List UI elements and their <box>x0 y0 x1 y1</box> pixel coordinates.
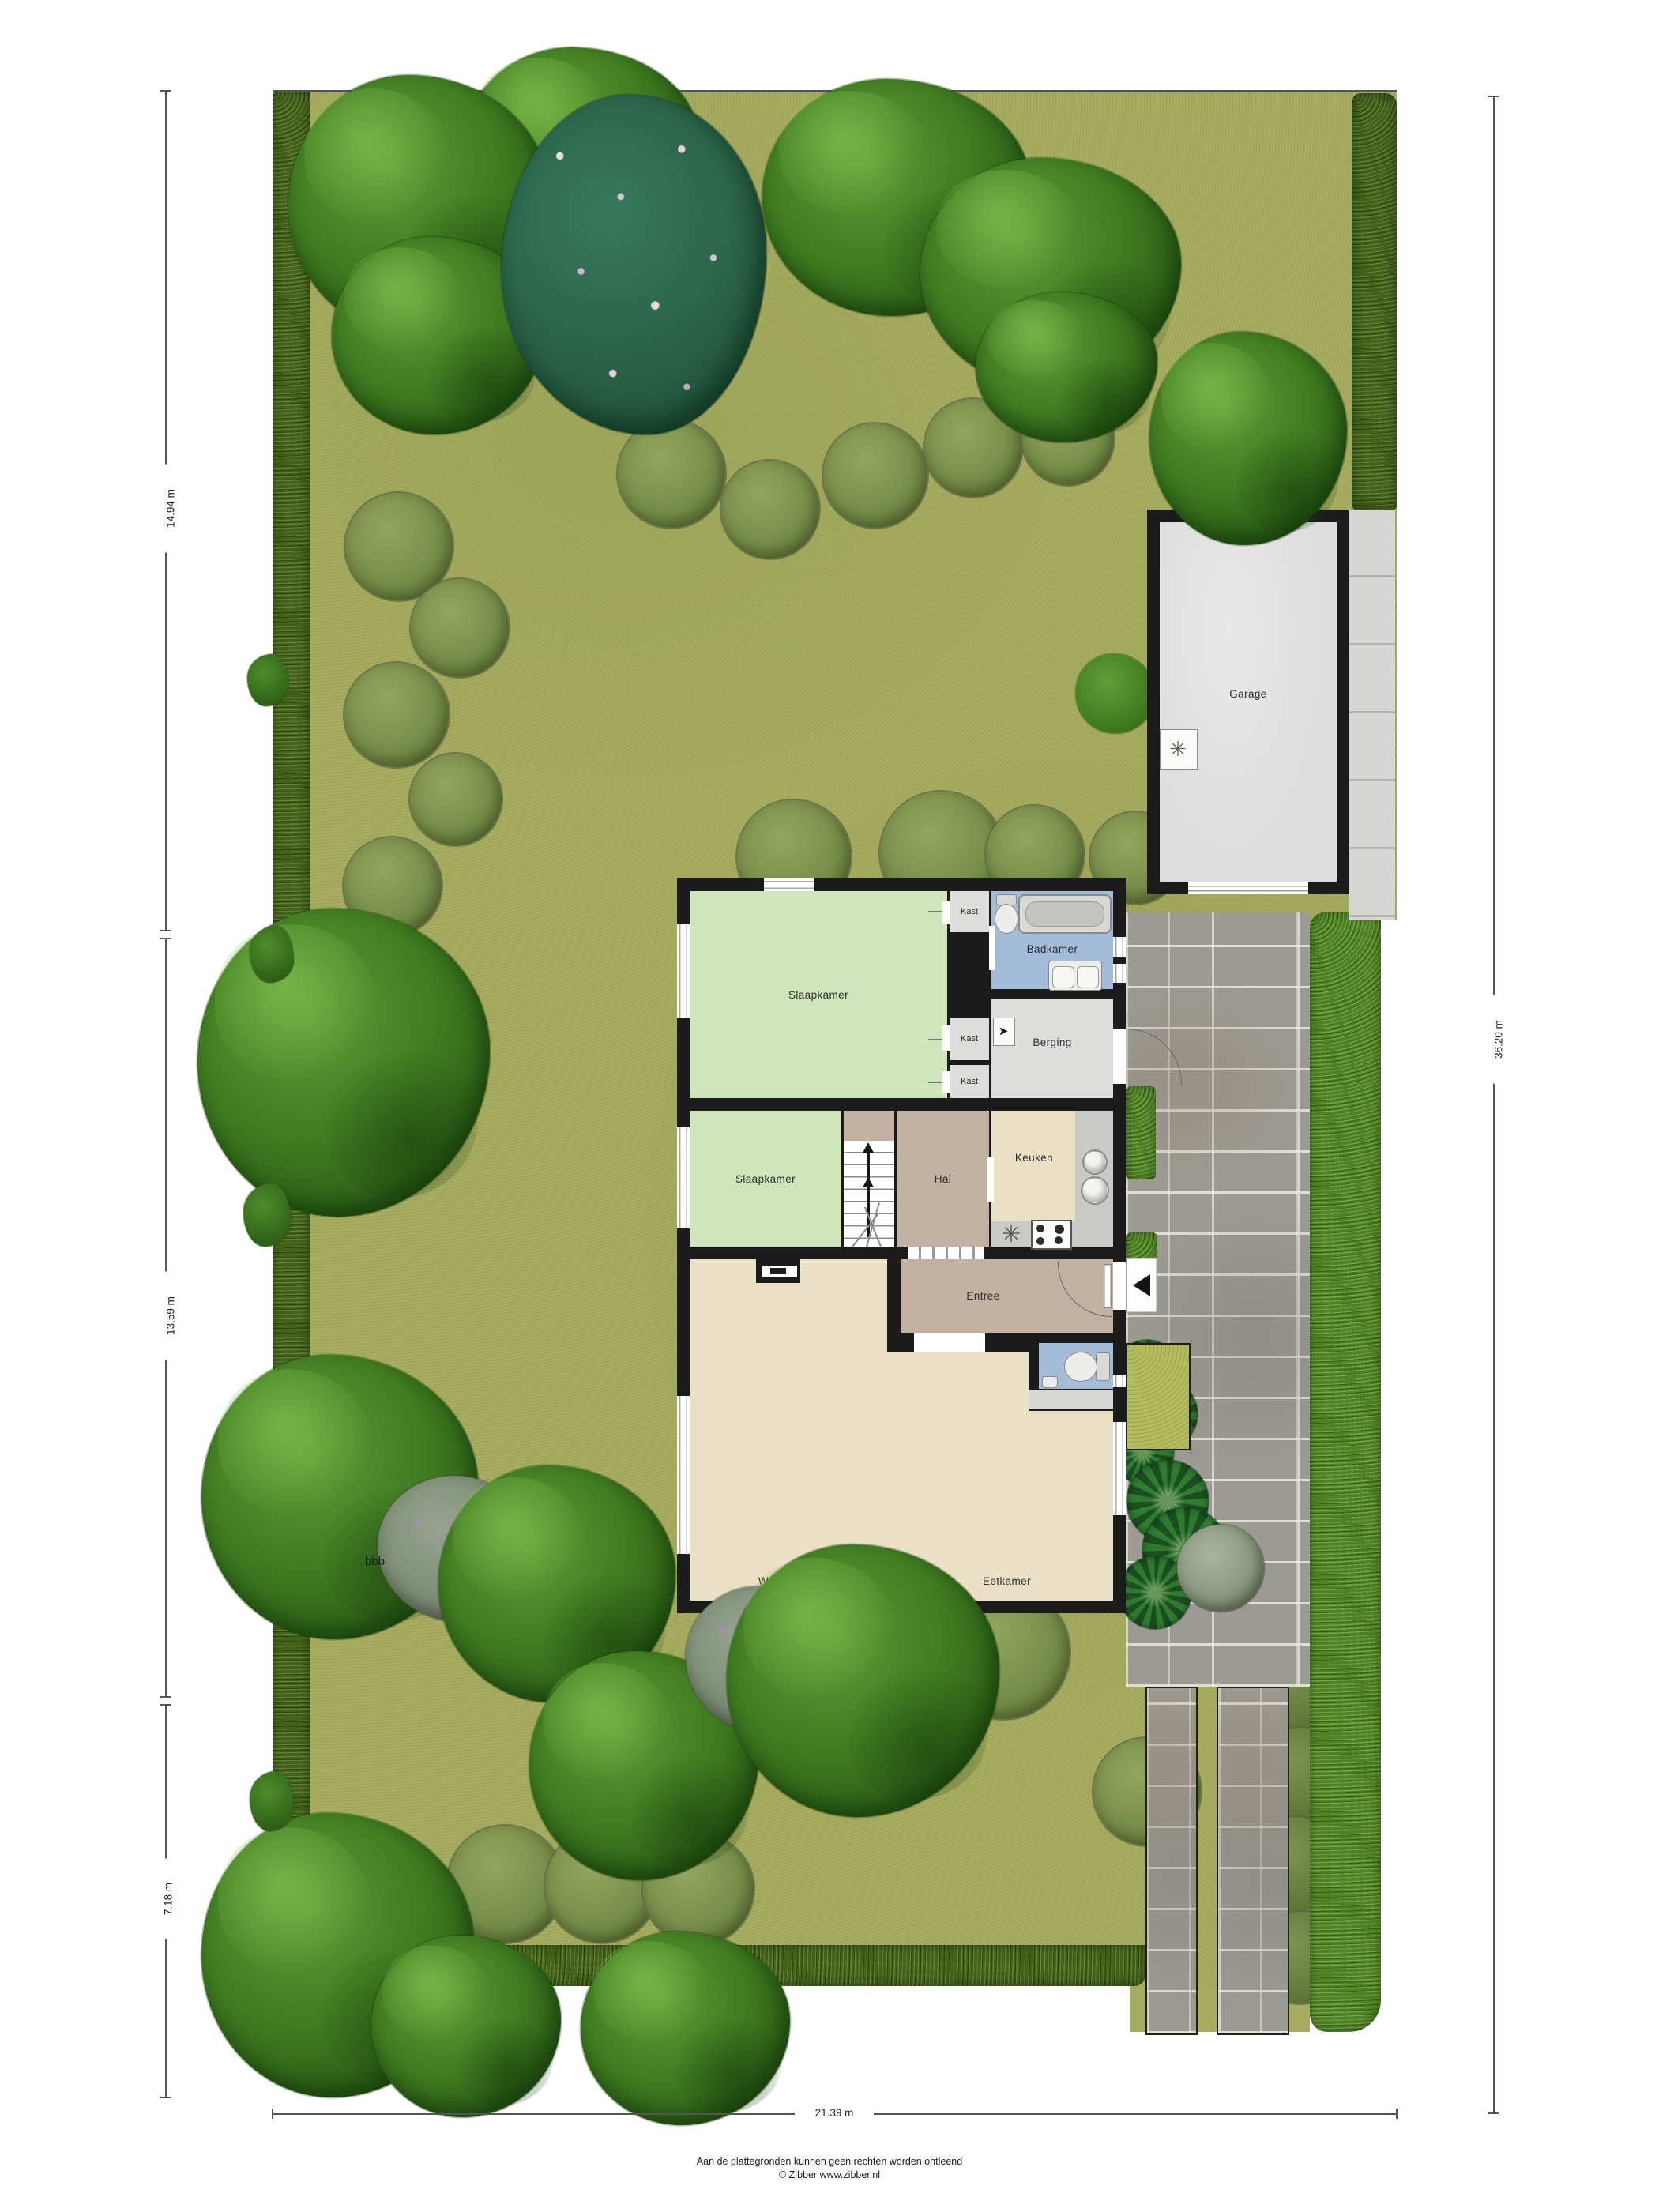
room-hal: Hal <box>897 1111 989 1247</box>
tree <box>371 1935 561 2117</box>
entrance-arrow-icon <box>1133 1274 1150 1296</box>
bush-bright <box>1076 654 1155 733</box>
shrub <box>721 461 819 559</box>
entree-label: Entree <box>901 1259 1066 1333</box>
dimension-label-left-bottom: 7.18 m <box>161 1859 176 1939</box>
tree <box>976 292 1157 442</box>
dimension-label-left-middle: 13.59 m <box>164 1272 179 1360</box>
badkamer-label: Badkamer <box>991 943 1113 955</box>
stairs-up-arrow-icon <box>863 1177 874 1187</box>
keuken-label: Keuken <box>991 1152 1077 1164</box>
dimension-tick <box>160 2097 171 2098</box>
stairs-up-arrow-icon <box>863 1142 874 1153</box>
extractor-fan-icon: ✳ <box>996 1220 1026 1248</box>
bathroom-toilet-icon <box>995 904 1018 934</box>
badkamer-window <box>1113 937 1126 957</box>
dimension-label-bottom: 21.39 m <box>795 2105 874 2120</box>
shrub <box>618 420 725 528</box>
stray-annotation: bbb <box>365 1555 385 1568</box>
dimension-tick <box>272 2109 273 2119</box>
tree <box>197 908 490 1217</box>
garage-label: Garage <box>1160 688 1337 700</box>
bush-grey <box>1177 1525 1264 1612</box>
shrub <box>411 579 509 677</box>
kast-1-label: Kast <box>946 891 993 932</box>
toilet-sink-icon <box>1042 1376 1058 1388</box>
room-slaapkamer-2: Slaapkamer <box>690 1111 841 1247</box>
entree-eetkamer-passage <box>914 1333 985 1352</box>
planting-bed <box>1126 1343 1191 1450</box>
tree <box>581 1932 790 2125</box>
kast-2-label: Kast <box>946 1018 993 1060</box>
berging-exterior-door <box>1113 1029 1126 1084</box>
stove-icon <box>1031 1220 1072 1250</box>
tree <box>727 1544 999 1817</box>
slaapkamer-2-label: Slaapkamer <box>690 1111 841 1247</box>
washbasin-icon <box>1048 961 1102 991</box>
garage-side-path <box>1349 510 1395 920</box>
kast-3-door <box>942 1071 950 1093</box>
hedge-driveway-right <box>1310 912 1381 2032</box>
footer-copyright: © Zibber www.zibber.nl <box>0 2169 1659 2182</box>
rear-step <box>1029 1390 1113 1409</box>
kitchen-sink-icon <box>1082 1178 1108 1203</box>
shrub <box>410 754 502 845</box>
house-floorplan: Slaapkamer Kast Badkamer Kast Kast Bergi… <box>677 878 1126 1613</box>
sprig <box>250 1771 294 1831</box>
dimension-tick <box>1488 2112 1499 2114</box>
stair-landing <box>844 1111 894 1141</box>
dimension-tick <box>160 930 171 931</box>
driveway-wheel-strip-left <box>1145 1687 1198 2035</box>
boiler-icon: ➤ <box>993 1019 1014 1043</box>
dimension-tick <box>1488 96 1499 97</box>
dimension-tick <box>160 1696 171 1698</box>
staircase <box>844 1141 894 1247</box>
driveway-wheel-strip-right <box>1217 1687 1289 2035</box>
eetkamer-window <box>1113 1422 1126 1515</box>
footer-disclaimer: Aan de plattegronden kunnen geen rechten… <box>0 2155 1659 2169</box>
front-door-opening <box>1113 1262 1126 1310</box>
water-heater-icon: ✳ <box>1163 732 1193 766</box>
dimension-tick <box>160 90 171 92</box>
dimension-tick <box>1396 2109 1398 2119</box>
fireplace-core <box>770 1268 786 1274</box>
dimension-label-right: 36.20 m <box>1492 995 1507 1084</box>
toilet-icon <box>1064 1352 1097 1382</box>
sprig <box>243 1183 291 1247</box>
woonkamer-window <box>677 1396 690 1554</box>
dimension-line-right <box>1493 96 1495 2113</box>
room-berging: Berging <box>991 999 1113 1098</box>
background-mask <box>1381 920 1659 2042</box>
dimension-tick <box>160 938 171 939</box>
dimension-label-left-top: 14.94 m <box>164 465 179 553</box>
footer: Aan de plattegronden kunnen geen rechten… <box>0 2155 1659 2182</box>
kast-2-door <box>942 1025 950 1051</box>
kitchen-sink-icon <box>1084 1151 1106 1173</box>
dimension-tick <box>160 1704 171 1706</box>
hal-entree-passage <box>908 1247 984 1259</box>
toilet-window <box>1113 1375 1126 1387</box>
sprig <box>250 926 294 983</box>
garage-door <box>1188 882 1308 894</box>
slaapkamer-1-window <box>677 924 690 1018</box>
tree <box>1149 332 1347 545</box>
badkamer-door <box>989 926 995 970</box>
slaapkamer-1-label: Slaapkamer <box>690 891 947 1098</box>
keuken-door <box>987 1157 994 1202</box>
kast-3-label: Kast <box>946 1065 993 1098</box>
bathtub-icon <box>1018 894 1112 934</box>
hedge-right-top <box>1352 93 1397 510</box>
shrub <box>823 423 927 528</box>
garage: Garage ✳ <box>1147 510 1349 894</box>
sprig <box>247 654 288 706</box>
site-plan-canvas: Garage ✳ Slaapkamer Kast Badkamer Kast K… <box>0 0 1659 2212</box>
room-slaapkamer-1: Slaapkamer <box>690 891 947 1098</box>
hedge-patch-upper <box>1126 1086 1156 1179</box>
hal-label: Hal <box>897 1111 989 1247</box>
badkamer-window <box>1113 964 1126 983</box>
slaapkamer-2-window <box>677 1127 690 1228</box>
shrub <box>344 663 449 767</box>
slaapkamer-1-top-window <box>764 878 814 891</box>
kast-1-door <box>942 901 950 924</box>
toilet-icon <box>1096 1352 1110 1381</box>
garage-floor: Garage <box>1160 522 1337 882</box>
bush-teal <box>502 95 766 434</box>
